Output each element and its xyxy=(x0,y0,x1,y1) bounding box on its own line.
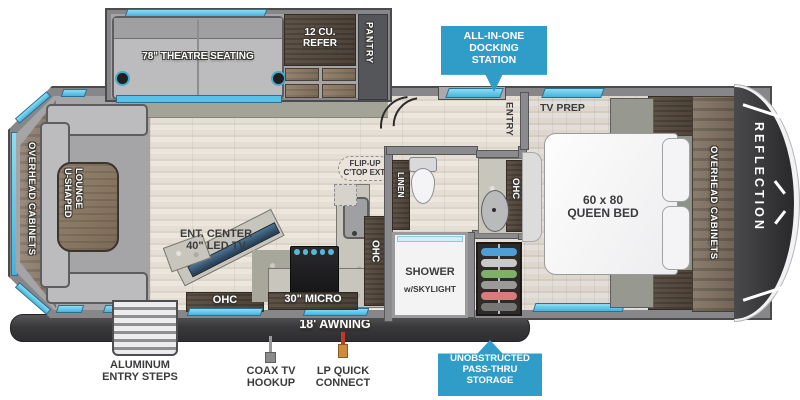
docking-station-badge: ALL-IN-ONE DOCKING STATION xyxy=(441,26,547,92)
bedroom-window-top xyxy=(541,88,605,98)
window xyxy=(56,305,85,313)
stove-knobs xyxy=(294,249,334,256)
hanger xyxy=(481,259,517,267)
hanger xyxy=(481,270,517,278)
coax-hookup-label: COAX TV HOOKUP xyxy=(240,366,302,390)
lp-connect-icon-connector xyxy=(338,344,348,358)
pantry-label: PANTRY xyxy=(364,22,373,64)
hanger xyxy=(481,248,517,256)
theatre-label: 78" THEATRE SEATING xyxy=(122,52,274,63)
kitchen-ohc-label: OHC xyxy=(369,240,380,262)
nightstand xyxy=(610,270,654,308)
bedroom-overhead-cabinets-label: OVERHEAD CABINETS xyxy=(708,146,718,260)
flip-up-countertop xyxy=(334,184,357,206)
window xyxy=(187,308,264,316)
lounge-table-label: U-SHAPED LOUNGE xyxy=(62,168,83,218)
ent-center-label: ENT. CENTER 40" LED TV xyxy=(172,229,260,253)
pillow xyxy=(662,138,690,202)
linen-label: LINEN xyxy=(396,172,405,198)
rear-overhead-cabinets-label: OVERHEAD CABINETS xyxy=(26,142,36,256)
micro-label: 30" MICRO xyxy=(274,294,352,306)
coax-hookup-icon-connector xyxy=(265,352,276,363)
drawer xyxy=(285,84,319,98)
hanger xyxy=(481,303,517,311)
entry-steps xyxy=(112,300,178,356)
drawer xyxy=(322,84,356,98)
entry-steps-label: ALUMINUM ENTRY STEPS xyxy=(92,360,188,384)
kitchen-faucet xyxy=(352,231,357,236)
tv-prep-label: TV PREP xyxy=(540,103,585,114)
bath-wall xyxy=(520,92,529,150)
theatre-cupholder-right xyxy=(271,71,286,86)
shower-label: SHOWER w/SKYLIGHT xyxy=(394,262,466,297)
window xyxy=(61,89,88,97)
hanger xyxy=(481,292,517,300)
drawer xyxy=(322,68,356,81)
bath-ohc-label: OHC xyxy=(510,178,520,199)
lp-connect-label: LP QUICK CONNECT xyxy=(312,366,374,390)
refer-label: 12 CU. REFER xyxy=(288,28,352,49)
nightstand xyxy=(610,98,654,136)
pillow xyxy=(662,206,690,270)
bath-sink-drain xyxy=(492,208,496,212)
rv-floorplan: 18' AWNING 78" THEATRE SEATING 12 CU. RE… xyxy=(0,0,800,400)
bed-label: 60 x 80 QUEEN BED xyxy=(548,194,658,220)
shower-skylight-strip xyxy=(397,236,463,242)
bedroom-dresser xyxy=(648,96,698,138)
entry-label: ENTRY xyxy=(503,102,513,136)
drawer xyxy=(285,68,319,81)
bath-wall xyxy=(386,146,478,155)
passthru-storage-badge: UNOBSTRUCTED PASS-THRU STORAGE xyxy=(438,340,542,396)
brand-label: REFLECTION xyxy=(752,122,766,288)
bedroom-step xyxy=(522,152,542,242)
theatre-front-edge xyxy=(116,95,282,103)
theatre-cupholder-left xyxy=(115,71,130,86)
hanger xyxy=(481,281,517,289)
